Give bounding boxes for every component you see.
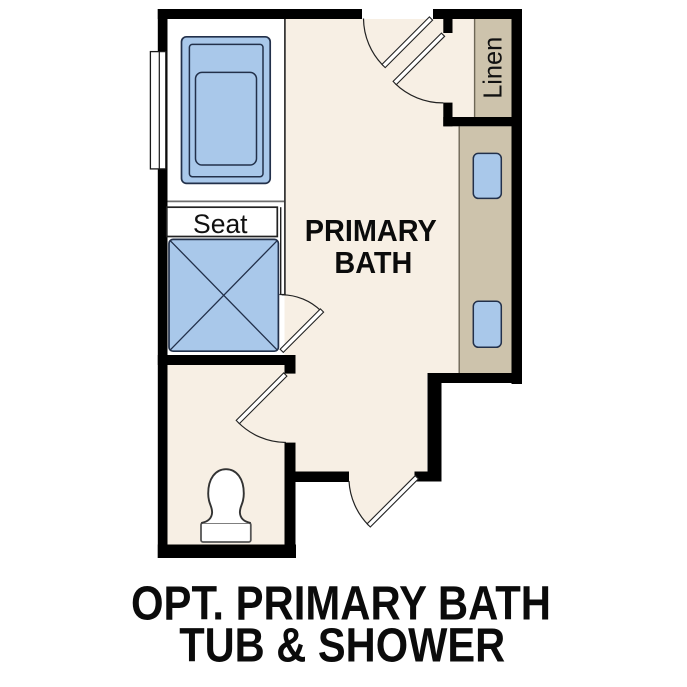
- svg-text:Linen: Linen: [478, 37, 508, 99]
- svg-text:Seat: Seat: [193, 209, 248, 239]
- svg-text:PRIMARY: PRIMARY: [305, 213, 437, 248]
- svg-text:BATH: BATH: [334, 245, 412, 280]
- svg-text:TUB & SHOWER: TUB & SHOWER: [179, 618, 505, 672]
